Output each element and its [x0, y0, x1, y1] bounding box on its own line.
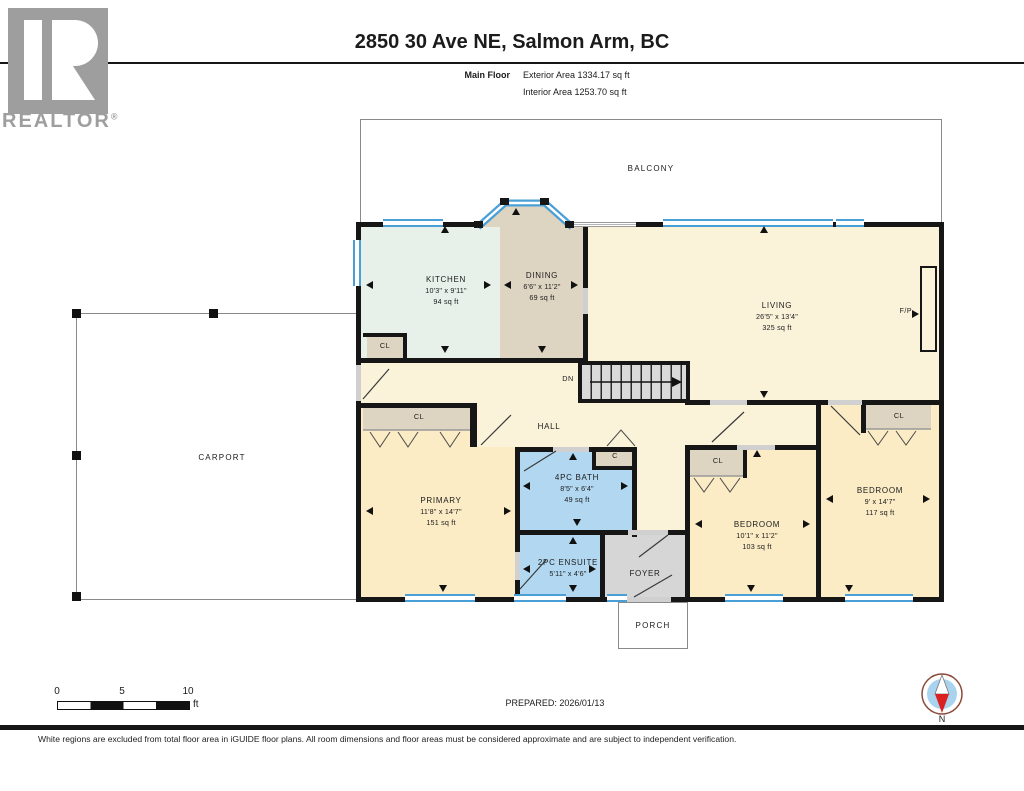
bedroom-right-area: 117 sq ft	[820, 508, 940, 519]
dimension-arrow	[366, 507, 373, 515]
dimension-arrow	[760, 391, 768, 398]
compass-icon	[916, 668, 968, 720]
door-opening	[553, 447, 589, 452]
primary-dims: 11'8" x 14'7"	[381, 507, 501, 518]
dimension-arrow	[573, 519, 581, 526]
dimension-arrow	[760, 226, 768, 233]
bedroom-right-name: BEDROOM	[820, 485, 940, 497]
kitchen-area: 94 sq ft	[386, 297, 506, 308]
carport-post	[72, 592, 81, 601]
dimension-arrow	[484, 281, 491, 289]
wall	[515, 530, 605, 535]
wall	[356, 403, 477, 408]
bath-name: 4PC BATH	[518, 472, 636, 484]
dimension-arrow	[441, 346, 449, 353]
scale-unit: ft	[193, 699, 199, 710]
dimension-arrow	[912, 310, 919, 318]
closet-label-small-c: C	[602, 451, 628, 460]
floorplan-page: 2850 30 Ave NE, Salmon Arm, BC REALTOR® …	[0, 0, 1024, 791]
door-opening	[356, 365, 361, 401]
page-title: 2850 30 Ave NE, Salmon Arm, BC	[0, 31, 1024, 54]
window	[836, 219, 864, 227]
dining-area: 69 sq ft	[492, 293, 592, 304]
closet-label-bedroom-mid: CL	[695, 456, 741, 465]
window	[514, 594, 566, 602]
window	[607, 594, 627, 602]
room-label-bath: 4PC BATH 8'5" x 6'4" 49 sq ft	[518, 472, 636, 506]
room-label-bedroom-mid: BEDROOM 10'1" x 11'2" 103 sq ft	[694, 519, 820, 553]
realtor-word: REALTOR	[2, 110, 111, 132]
primary-area: 151 sq ft	[381, 518, 501, 529]
living-fill	[588, 227, 939, 361]
closet-label-kitchen: CL	[367, 341, 403, 350]
bath-dims: 8'5" x 6'4"	[518, 484, 636, 495]
scale-tick-5: 5	[115, 686, 129, 697]
porch-name: PORCH	[636, 621, 671, 630]
dimension-arrow	[569, 585, 577, 592]
window	[353, 240, 361, 286]
room-label-foyer: FOYER	[601, 560, 689, 584]
dimension-arrow	[504, 281, 511, 289]
door-opening	[828, 400, 862, 405]
floorplan: BALCONY KITCHEN 10'3" x 9'11" 94 sq ft D…	[0, 0, 1024, 791]
hall-name: HALL	[538, 422, 561, 431]
dimension-arrow	[569, 537, 577, 544]
bath-area: 49 sq ft	[518, 495, 636, 506]
fireplace	[920, 266, 937, 352]
dimension-arrow	[569, 453, 577, 460]
wall	[743, 448, 747, 478]
dimension-arrow	[366, 281, 373, 289]
dimension-arrow	[504, 507, 511, 515]
dimension-arrow	[826, 495, 833, 503]
dimension-arrow	[538, 346, 546, 353]
dimension-arrow	[523, 565, 530, 573]
room-label-carport: CARPORT	[160, 452, 284, 464]
prepared-date: PREPARED: 2026/01/13	[400, 698, 710, 708]
bedroom-mid-name: BEDROOM	[694, 519, 820, 531]
living-name: LIVING	[717, 300, 837, 312]
wall	[592, 466, 636, 470]
living-area: 325 sq ft	[717, 323, 837, 334]
room-label-porch: PORCH	[613, 620, 693, 632]
room-label-living: LIVING 26'5" x 13'4" 325 sq ft	[717, 300, 837, 334]
window	[383, 219, 443, 227]
footer-rule	[0, 725, 1024, 730]
room-label-bedroom-right: BEDROOM 9' x 14'7" 117 sq ft	[820, 485, 940, 519]
dimension-arrow	[523, 482, 530, 490]
room-label-kitchen: KITCHEN 10'3" x 9'11" 94 sq ft	[386, 274, 506, 308]
dimension-arrow	[747, 585, 755, 592]
wall	[470, 403, 477, 447]
window	[845, 594, 913, 602]
scale-bar	[57, 701, 190, 710]
window	[663, 219, 833, 227]
dimension-arrow	[441, 226, 449, 233]
dimension-arrow	[571, 281, 578, 289]
room-label-balcony: BALCONY	[551, 163, 751, 175]
closet-label-primary: CL	[397, 412, 441, 421]
dimension-arrow	[621, 482, 628, 490]
realtor-logo-text: REALTOR®	[2, 110, 142, 133]
window	[725, 594, 783, 602]
registered-mark: ®	[111, 111, 120, 121]
living-fill-lower	[690, 361, 939, 400]
wall	[939, 222, 944, 602]
window	[405, 594, 475, 602]
header-rule	[0, 62, 1024, 64]
dimension-arrow	[845, 585, 853, 592]
bedroom-mid-dims: 10'1" x 11'2"	[694, 531, 820, 542]
sliding-door	[572, 222, 636, 227]
stairs	[578, 361, 690, 403]
wall	[356, 358, 588, 363]
scale-tick-10: 10	[178, 686, 198, 697]
wall	[861, 403, 866, 433]
dimension-arrow	[803, 520, 810, 528]
dimension-arrow	[753, 450, 761, 457]
dimension-arrow	[439, 585, 447, 592]
wall	[403, 333, 407, 363]
carport-post	[209, 309, 218, 318]
closet-label-bedroom-right: CL	[876, 411, 922, 420]
stairs-down-label: DN	[556, 374, 580, 383]
room-label-primary: PRIMARY 11'8" x 14'7" 151 sq ft	[381, 495, 501, 529]
disclaimer-text: White regions are excluded from total fl…	[38, 734, 998, 744]
scale-tick-0: 0	[50, 686, 64, 697]
wall	[363, 333, 407, 337]
door-opening	[627, 597, 671, 602]
corridor-foyer-fill	[637, 447, 685, 537]
carport-post	[72, 309, 81, 318]
fireplace-label: F/P	[884, 308, 912, 315]
carport-name: CARPORT	[198, 453, 245, 462]
realtor-logo-icon	[8, 8, 108, 114]
bedroom-right-dims: 9' x 14'7"	[820, 497, 940, 508]
balcony-name: BALCONY	[628, 164, 675, 173]
foyer-name: FOYER	[629, 569, 660, 578]
dimension-arrow	[589, 565, 596, 573]
door-opening	[710, 400, 747, 405]
bedroom-mid-area: 103 sq ft	[694, 542, 820, 553]
dimension-arrow	[512, 208, 520, 215]
dimension-arrow	[923, 495, 930, 503]
living-dims: 26'5" x 13'4"	[717, 312, 837, 323]
door-opening	[628, 530, 668, 535]
primary-name: PRIMARY	[381, 495, 501, 507]
room-label-hall: HALL	[519, 413, 579, 437]
dimension-arrow	[695, 520, 702, 528]
carport-post	[72, 451, 81, 460]
